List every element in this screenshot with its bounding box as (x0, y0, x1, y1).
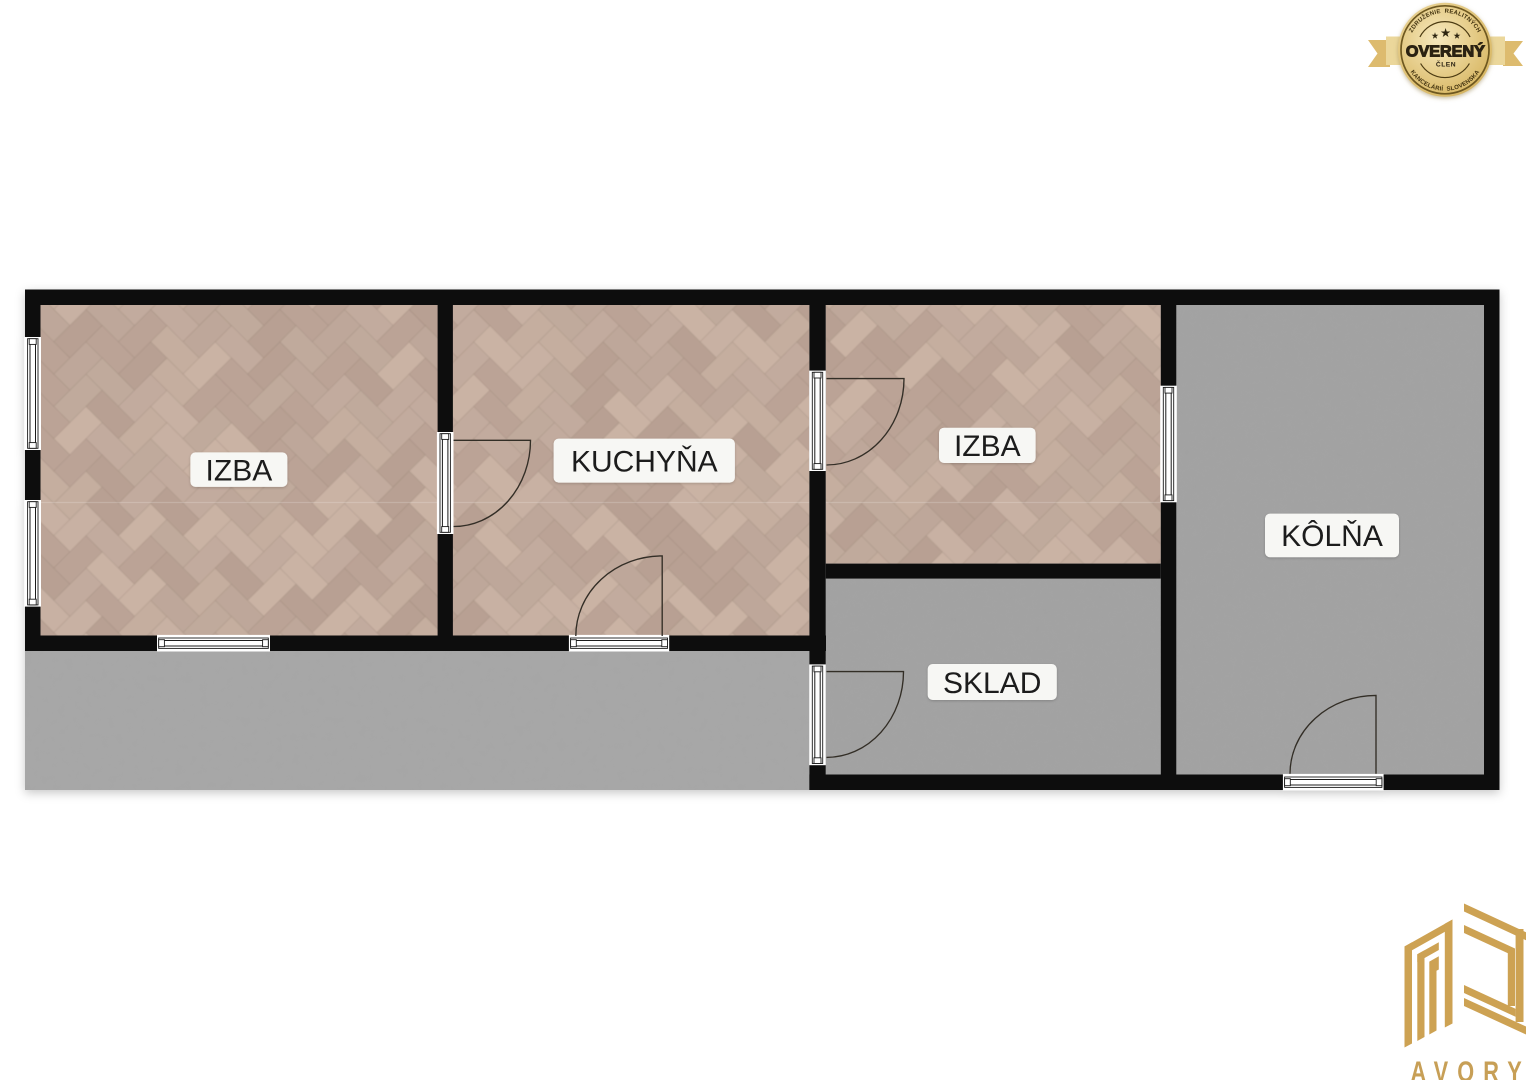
svg-text:KÔLŇA: KÔLŇA (1281, 519, 1383, 553)
svg-text:KUCHYŇA: KUCHYŇA (571, 445, 718, 478)
svg-text:ČLEN: ČLEN (1436, 60, 1456, 69)
svg-text:AVORY: AVORY (1411, 1057, 1526, 1080)
svg-text:IZBA: IZBA (954, 430, 1021, 463)
svg-text:SKLAD: SKLAD (943, 667, 1041, 700)
svg-text:OVERENÝ: OVERENÝ (1406, 42, 1485, 61)
svg-text:IZBA: IZBA (206, 455, 273, 488)
